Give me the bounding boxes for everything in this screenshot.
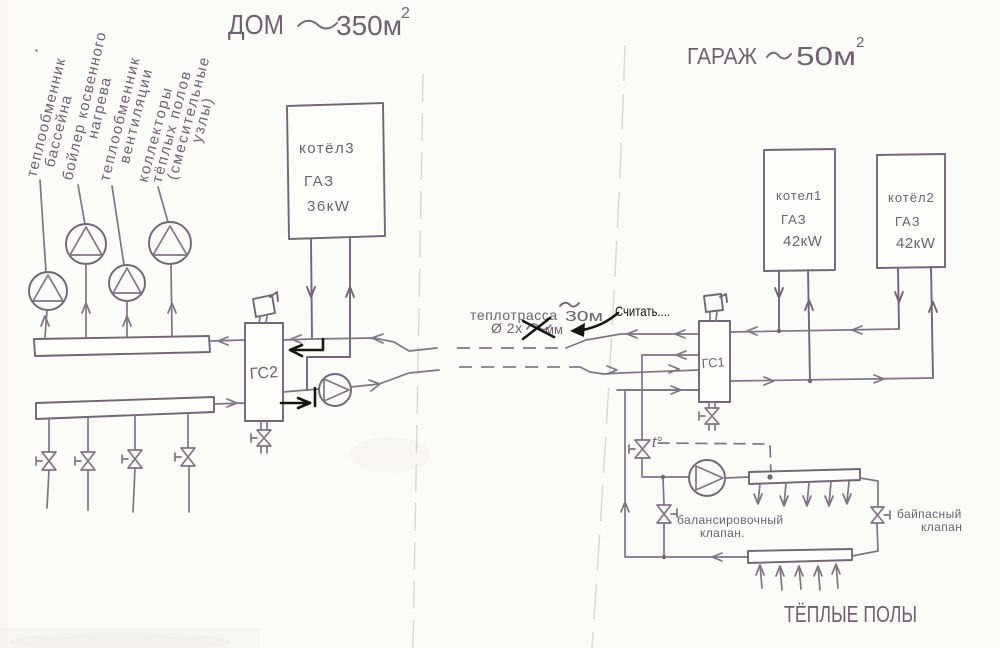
- svg-text:котёл3: котёл3: [299, 140, 355, 157]
- svg-text:ГАЗ: ГАЗ: [895, 214, 921, 229]
- svg-text:ТЁПЛЫЕ ПОЛЫ: ТЁПЛЫЕ ПОЛЫ: [784, 601, 917, 627]
- svg-text:ГС1: ГС1: [701, 354, 725, 371]
- svg-text:клапан.: клапан.: [700, 526, 745, 540]
- svg-text:Считать....: Считать....: [615, 303, 670, 319]
- svg-text:30м: 30м: [565, 308, 603, 325]
- svg-text:котел1: котел1: [776, 188, 822, 203]
- svg-text:ГС2: ГС2: [249, 364, 279, 383]
- svg-text:50м: 50м: [796, 41, 856, 71]
- svg-text:2: 2: [401, 5, 410, 22]
- svg-text:балансировочный: балансировочный: [677, 513, 783, 527]
- svg-text:Ø 2х: Ø 2х: [491, 320, 523, 336]
- svg-text:ГАЗ: ГАЗ: [781, 212, 807, 227]
- svg-text:ГАЗ: ГАЗ: [304, 173, 335, 190]
- svg-text:350м: 350м: [336, 10, 402, 41]
- svg-text:42кW: 42кW: [896, 235, 936, 252]
- svg-text:клапан: клапан: [921, 520, 962, 534]
- svg-text:2: 2: [856, 34, 864, 51]
- svg-text:котёл2: котёл2: [888, 190, 935, 205]
- svg-text:ГАРАЖ: ГАРАЖ: [687, 43, 757, 69]
- svg-text:42кW: 42кW: [783, 233, 823, 250]
- svg-text:байпасный: байпасный: [897, 507, 962, 521]
- svg-text:ДОМ: ДОМ: [228, 9, 284, 40]
- svg-text:36кW: 36кW: [307, 198, 350, 215]
